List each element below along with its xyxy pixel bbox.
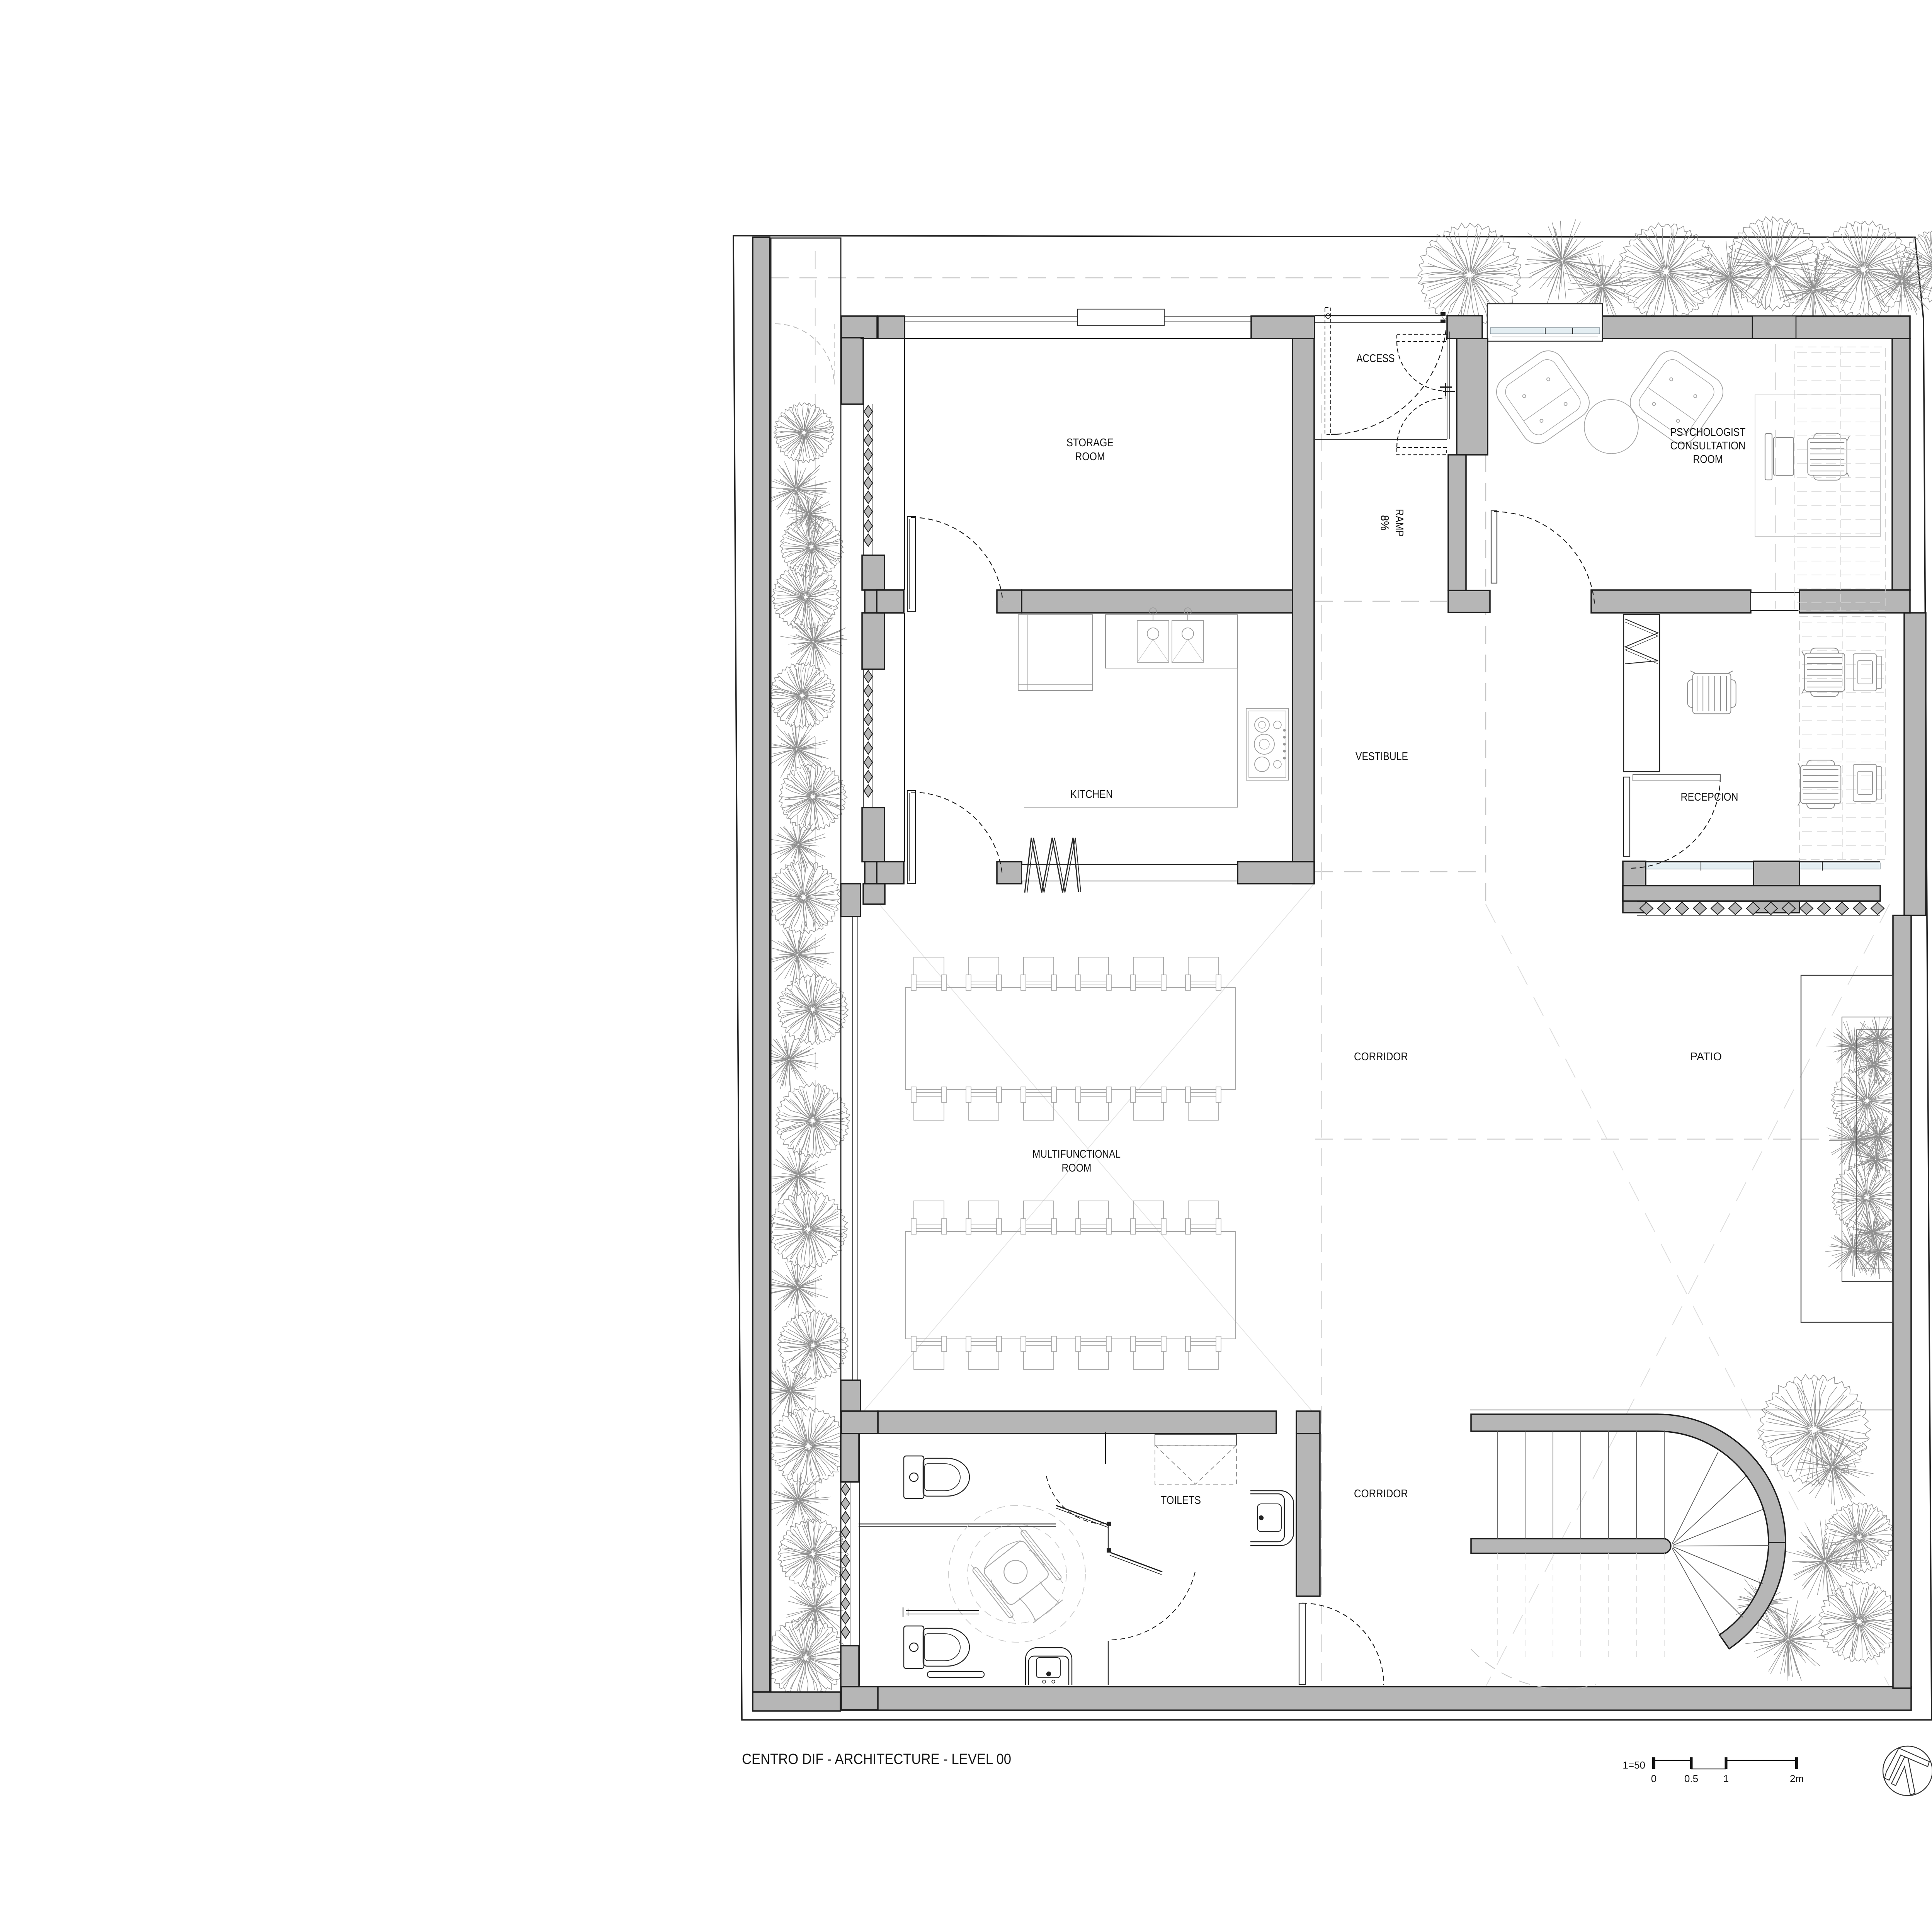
svg-text:CORRIDOR: CORRIDOR xyxy=(1354,1051,1408,1063)
svg-text:ROOM: ROOM xyxy=(1693,453,1723,466)
svg-text:KITCHEN: KITCHEN xyxy=(1070,788,1113,801)
svg-text:2m: 2m xyxy=(1790,1773,1804,1784)
svg-text:CENTRO DIF - ARCHITECTURE - LE: CENTRO DIF - ARCHITECTURE - LEVEL 00 xyxy=(742,1751,1011,1767)
svg-text:ROOM: ROOM xyxy=(1075,451,1105,463)
svg-text:RECEPCION: RECEPCION xyxy=(1681,791,1738,803)
svg-text:STORAGE: STORAGE xyxy=(1066,437,1114,449)
svg-text:0.5: 0.5 xyxy=(1684,1773,1698,1784)
svg-text:CONSULTATION: CONSULTATION xyxy=(1670,440,1746,452)
svg-text:RAMP: RAMP xyxy=(1393,509,1405,537)
svg-text:0: 0 xyxy=(1651,1773,1656,1784)
svg-text:MULTIFUNCTIONAL: MULTIFUNCTIONAL xyxy=(1032,1148,1121,1160)
svg-text:ROOM: ROOM xyxy=(1062,1162,1092,1174)
svg-text:1=50: 1=50 xyxy=(1622,1759,1645,1771)
svg-text:CORRIDOR: CORRIDOR xyxy=(1354,1488,1408,1500)
svg-text:PATIO: PATIO xyxy=(1690,1051,1722,1063)
svg-text:1: 1 xyxy=(1723,1773,1729,1784)
svg-text:8%: 8% xyxy=(1378,515,1391,531)
svg-text:PSYCHOLOGIST: PSYCHOLOGIST xyxy=(1670,426,1746,439)
svg-text:VESTIBULE: VESTIBULE xyxy=(1355,750,1408,763)
svg-text:ACCESS: ACCESS xyxy=(1357,352,1395,365)
svg-text:TOILETS: TOILETS xyxy=(1161,1494,1201,1507)
